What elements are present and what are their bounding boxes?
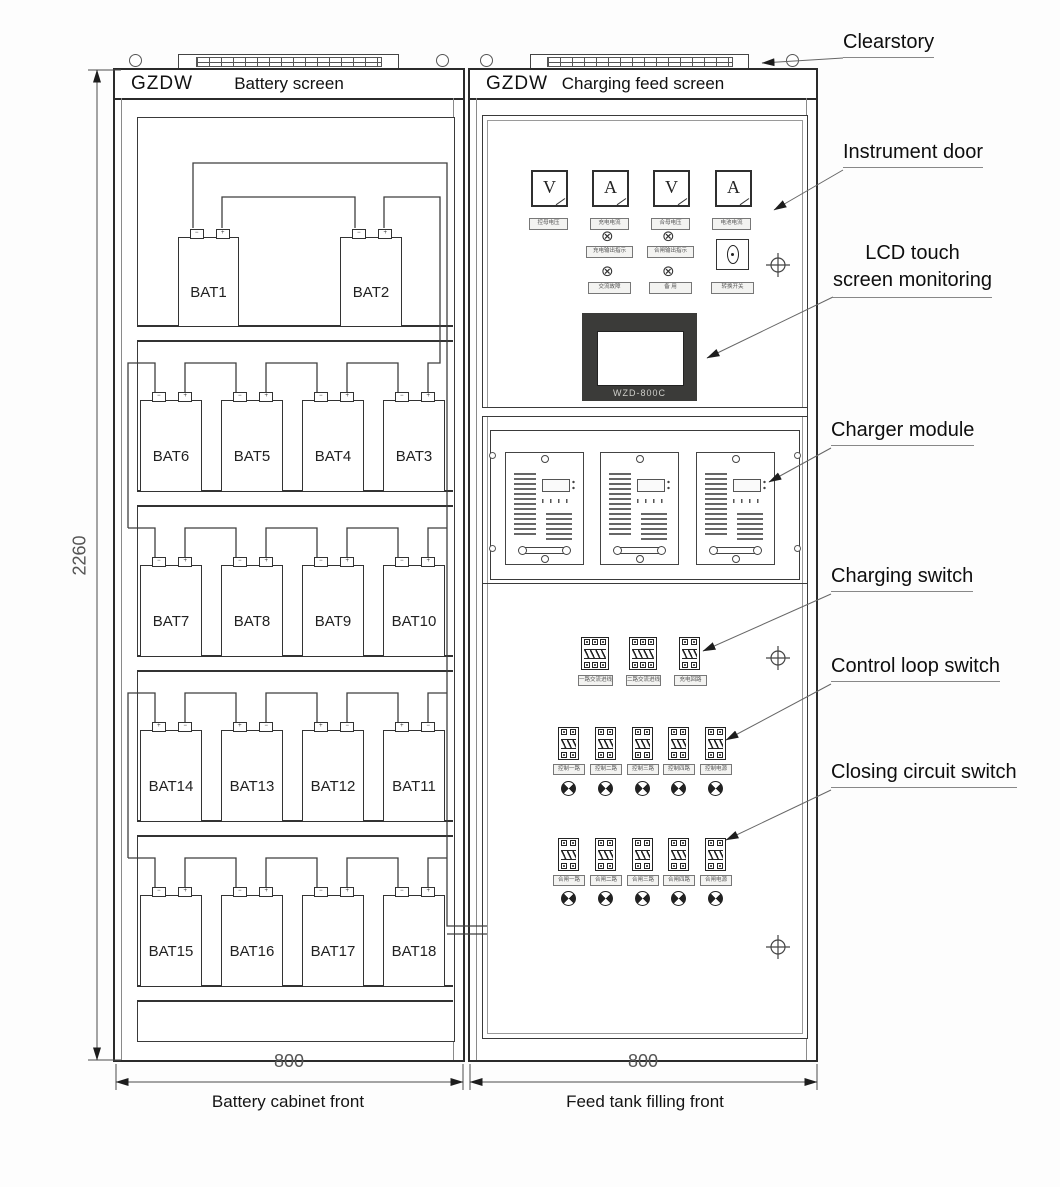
terminal-sign: + [400, 723, 404, 729]
breaker-levers [671, 739, 686, 749]
battery-label: BAT10 [384, 613, 444, 630]
battery: −+BAT3 [383, 400, 445, 492]
lcd-display [597, 331, 684, 386]
breaker-levers [598, 739, 613, 749]
annotation-clearstory: Clearstory [843, 31, 934, 58]
breaker-poles [559, 751, 578, 759]
indicator-light-icon: ⊗ [662, 229, 675, 244]
rotary-switch [716, 239, 749, 270]
fuse-indicator-icon [561, 891, 576, 906]
battery: − + BAT1 [178, 237, 239, 327]
panel-screw-icon [794, 545, 801, 552]
battery: −+BAT18 [383, 895, 445, 987]
battery: +−BAT11 [383, 730, 445, 822]
terminal-sign: − [400, 558, 404, 564]
handle-cap-icon [709, 546, 718, 555]
fuse-indicator-icon [561, 781, 576, 796]
module-screw-icon [541, 455, 549, 463]
battery-terminal-negative: − [152, 557, 166, 567]
terminal-sign: − [157, 558, 161, 564]
meter-symbol: A [604, 177, 617, 197]
terminal-sign: + [264, 558, 268, 564]
module-vent-grille [546, 513, 572, 543]
breaker-levers [682, 649, 697, 659]
breaker-poles [680, 661, 699, 669]
switch-label-plate: 控制三路 [627, 764, 659, 775]
annotation-charger-module: Charger module [831, 419, 974, 446]
terminal-sign: + [157, 723, 161, 729]
breaker-poles [630, 661, 656, 669]
terminal-sign: + [383, 230, 387, 236]
fuse-indicator-icon [635, 781, 650, 796]
module-indicator-row [542, 499, 574, 503]
battery-label: BAT12 [303, 778, 363, 795]
breaker-poles [669, 728, 688, 736]
battery-label: BAT14 [141, 778, 201, 795]
breaker-poles [596, 728, 615, 736]
feed-cabinet-width-dimension: 800 [593, 1051, 693, 1072]
breaker-levers [632, 649, 654, 659]
voltmeter: V [531, 170, 568, 207]
handle-cap-icon [753, 546, 762, 555]
breaker-poles [559, 728, 578, 736]
battery-terminal-negative: − [190, 229, 204, 239]
battery-terminal-positive: + [421, 887, 435, 897]
battery: −+BAT17 [302, 895, 364, 987]
battery: +−BAT14 [140, 730, 202, 822]
module-indicator-row [733, 499, 765, 503]
module-screw-icon [636, 455, 644, 463]
breaker-poles [706, 728, 725, 736]
battery: −+BAT9 [302, 565, 364, 657]
terminal-sign: − [400, 393, 404, 399]
breaker-levers [584, 649, 606, 659]
switch-label-plate: 控制二路 [590, 764, 622, 775]
terminal-sign: − [183, 723, 187, 729]
battery-terminal-positive: + [152, 722, 166, 732]
switch-label-plate: 二路交流进线 [626, 675, 661, 686]
battery-terminal-positive: + [340, 392, 354, 402]
battery-terminal-negative: − [178, 722, 192, 732]
annotation-line: LCD touch [833, 240, 992, 267]
vent-grille [196, 57, 382, 67]
terminal-sign: + [345, 558, 349, 564]
battery-terminal-negative: − [395, 392, 409, 402]
breaker-levers [708, 739, 723, 749]
battery-terminal-positive: + [314, 722, 328, 732]
closing-circuit-breaker [668, 838, 689, 871]
battery-shelf [137, 490, 453, 507]
charging-switch-breaker [629, 637, 657, 670]
lcd-touch-screen: WZD-800C [582, 313, 697, 401]
battery-terminal-positive: + [421, 392, 435, 402]
battery-terminal-positive: + [178, 557, 192, 567]
charging-switch-breaker [679, 637, 700, 670]
meter-label-plate: 电池电流 [712, 218, 751, 230]
indicator-light-icon: ⊗ [662, 264, 675, 279]
battery-terminal-negative: − [152, 392, 166, 402]
cabinet-title: Charging feed screen [470, 74, 816, 94]
rotary-switch-label-plate: 转换开关 [711, 282, 754, 294]
battery-label: BAT9 [303, 613, 363, 630]
switch-label-plate: 一路交流进线 [578, 675, 613, 686]
voltmeter: V [653, 170, 690, 207]
breaker-levers [561, 739, 576, 749]
instrument-door-divider [482, 407, 807, 417]
battery-terminal-positive: + [233, 722, 247, 732]
battery-label: BAT15 [141, 943, 201, 960]
feeder-section-divider [482, 583, 807, 584]
feed-cabinet-caption: Feed tank filling front [508, 1092, 782, 1112]
terminal-sign: + [426, 558, 430, 564]
breaker-poles [633, 839, 652, 847]
battery-label: BAT2 [341, 284, 401, 301]
switch-label-plate: 合闸三路 [627, 875, 659, 886]
battery-label: BAT11 [384, 778, 444, 795]
handle-cap-icon [613, 546, 622, 555]
battery-label: BAT7 [141, 613, 201, 630]
breaker-poles [596, 839, 615, 847]
charger-module [600, 452, 679, 565]
battery-terminal-negative: − [314, 557, 328, 567]
control-loop-breaker [705, 727, 726, 760]
module-led-icons [763, 480, 766, 490]
charging-switch-breaker [581, 637, 609, 670]
battery-label: BAT13 [222, 778, 282, 795]
battery-label: BAT6 [141, 448, 201, 465]
closing-circuit-breaker [632, 838, 653, 871]
terminal-sign: − [426, 723, 430, 729]
breaker-poles [596, 862, 615, 870]
module-display [637, 479, 665, 492]
closing-circuit-breaker [595, 838, 616, 871]
feed-cabinet-nameplate: GZDW Charging feed screen [470, 70, 816, 100]
battery-label: BAT18 [384, 943, 444, 960]
battery-cabinet-nameplate: GZDW Battery screen [115, 70, 463, 100]
indicator-light-icon: ⊗ [601, 264, 614, 279]
terminal-sign: + [345, 393, 349, 399]
terminal-sign: − [238, 888, 242, 894]
battery-terminal-positive: + [378, 229, 392, 239]
battery-terminal-positive: + [340, 887, 354, 897]
battery-terminal-positive: + [421, 557, 435, 567]
terminal-sign: + [183, 888, 187, 894]
battery-label: BAT3 [384, 448, 444, 465]
breaker-poles [559, 862, 578, 870]
terminal-sign: − [238, 393, 242, 399]
panel-screw-icon [489, 452, 496, 459]
breaker-poles [582, 638, 608, 646]
annotation-instrument-door: Instrument door [843, 141, 983, 168]
handle-cap-icon [562, 546, 571, 555]
closing-circuit-breaker [558, 838, 579, 871]
battery-terminal-positive: + [259, 887, 273, 897]
module-screw-icon [636, 555, 644, 563]
annotation-control-loop-switch: Control loop switch [831, 655, 1000, 682]
fuse-indicator-icon [671, 891, 686, 906]
breaker-poles [706, 862, 725, 870]
battery-terminal-positive: + [340, 557, 354, 567]
switch-label-plate: 控制四路 [663, 764, 695, 775]
terminal-sign: − [400, 888, 404, 894]
battery: +−BAT13 [221, 730, 283, 822]
battery-terminal-negative: − [352, 229, 366, 239]
breaker-poles [669, 751, 688, 759]
breaker-poles [633, 862, 652, 870]
cabinet-title: Battery screen [115, 74, 463, 94]
breaker-poles [633, 751, 652, 759]
battery-cabinet-width-dimension: 800 [239, 1051, 339, 1072]
annotation-charging-switch: Charging switch [831, 565, 973, 592]
battery: −+BAT16 [221, 895, 283, 987]
battery: −+BAT8 [221, 565, 283, 657]
meter-needle-icon [556, 198, 566, 205]
breaker-levers [671, 850, 686, 860]
breaker-levers [635, 739, 650, 749]
breaker-poles [706, 839, 725, 847]
breaker-poles [596, 751, 615, 759]
cabinet-wall-line [476, 98, 477, 1060]
fuse-indicator-icon [598, 891, 613, 906]
meter-label-plate: 控母电压 [529, 218, 568, 230]
meter-needle-icon [740, 198, 750, 205]
charger-module [696, 452, 775, 565]
fuse-indicator-icon [671, 781, 686, 796]
terminal-sign: − [157, 888, 161, 894]
meter-symbol: V [543, 177, 556, 197]
battery: − + BAT2 [340, 237, 402, 327]
breaker-levers [561, 850, 576, 860]
battery-shelf [137, 655, 453, 672]
breaker-poles [630, 638, 656, 646]
breaker-poles [633, 728, 652, 736]
battery: −+BAT5 [221, 400, 283, 492]
battery-label: BAT5 [222, 448, 282, 465]
breaker-poles [680, 638, 699, 646]
terminal-sign: − [238, 558, 242, 564]
battery-terminal-positive: + [395, 722, 409, 732]
terminal-sign: − [264, 723, 268, 729]
control-loop-breaker [595, 727, 616, 760]
module-vent-grille [609, 473, 631, 537]
breaker-levers [598, 850, 613, 860]
battery-terminal-negative: − [233, 392, 247, 402]
breaker-levers [635, 850, 650, 860]
battery-terminal-negative: − [395, 887, 409, 897]
terminal-sign: − [357, 230, 361, 236]
terminal-sign: − [195, 230, 199, 236]
battery: −+BAT7 [140, 565, 202, 657]
terminal-sign: + [264, 888, 268, 894]
meter-needle-icon [617, 198, 627, 205]
battery-terminal-positive: + [216, 229, 230, 239]
module-vent-grille [737, 513, 763, 543]
control-loop-breaker [632, 727, 653, 760]
charger-module [505, 452, 584, 565]
battery-label: BAT17 [303, 943, 363, 960]
module-vent-grille [514, 473, 536, 537]
annotation-closing-circuit-switch: Closing circuit switch [831, 761, 1017, 788]
terminal-sign: + [426, 393, 430, 399]
indicator-light-icon: ⊗ [601, 229, 614, 244]
terminal-sign: + [426, 888, 430, 894]
lifting-eye [786, 54, 799, 67]
battery-label: BAT16 [222, 943, 282, 960]
rotary-knob-icon [727, 245, 739, 264]
battery-terminal-negative: − [314, 392, 328, 402]
meter-symbol: A [727, 177, 740, 197]
battery-terminal-positive: + [178, 887, 192, 897]
annotation-line: screen monitoring [833, 267, 992, 294]
height-dimension: 2260 [70, 501, 91, 611]
switch-label-plate: 充电回路 [674, 675, 707, 686]
handle-cap-icon [657, 546, 666, 555]
battery-label: BAT4 [303, 448, 363, 465]
indicator-label-plate: 充电输出指示 [586, 246, 633, 258]
meter-symbol: V [665, 177, 678, 197]
meter-needle-icon [678, 198, 688, 205]
battery-cabinet-caption: Battery cabinet front [157, 1092, 419, 1112]
battery: −+BAT10 [383, 565, 445, 657]
lifting-eye [129, 54, 142, 67]
switch-label-plate: 合闸电源 [700, 875, 732, 886]
panel-screw-icon [794, 452, 801, 459]
battery-terminal-positive: + [259, 392, 273, 402]
terminal-sign: + [221, 230, 225, 236]
panel-screw-icon [489, 545, 496, 552]
control-loop-breaker [668, 727, 689, 760]
breaker-poles [669, 862, 688, 870]
lifting-eye [436, 54, 449, 67]
terminal-sign: + [238, 723, 242, 729]
fuse-indicator-icon [598, 781, 613, 796]
fuse-indicator-icon [708, 781, 723, 796]
indicator-label-plate: 交流故障 [588, 282, 631, 294]
switch-label-plate: 合闸一路 [553, 875, 585, 886]
ammeter: A [592, 170, 629, 207]
lifting-eye [480, 54, 493, 67]
battery-terminal-negative: − [259, 722, 273, 732]
module-led-icons [572, 480, 575, 490]
battery-shelf [137, 985, 453, 1002]
battery: −+BAT4 [302, 400, 364, 492]
ammeter: A [715, 170, 752, 207]
terminal-sign: − [345, 723, 349, 729]
indicator-label-plate: 合闸输出指示 [647, 246, 694, 258]
battery: +−BAT12 [302, 730, 364, 822]
cabinet-wall-line [121, 98, 122, 1060]
battery-terminal-negative: − [152, 887, 166, 897]
battery: −+BAT15 [140, 895, 202, 987]
battery-terminal-positive: + [259, 557, 273, 567]
battery-terminal-positive: + [178, 392, 192, 402]
terminal-sign: − [319, 888, 323, 894]
breaker-poles [582, 661, 608, 669]
battery-terminal-negative: − [233, 887, 247, 897]
module-screw-icon [732, 455, 740, 463]
module-vent-grille [641, 513, 667, 543]
module-led-icons [667, 480, 670, 490]
battery-label: BAT1 [179, 284, 238, 301]
closing-circuit-breaker [705, 838, 726, 871]
battery-terminal-negative: − [314, 887, 328, 897]
terminal-sign: + [319, 723, 323, 729]
terminal-sign: + [345, 888, 349, 894]
switch-label-plate: 合闸二路 [590, 875, 622, 886]
battery-label: BAT8 [222, 613, 282, 630]
module-screw-icon [541, 555, 549, 563]
terminal-sign: − [319, 393, 323, 399]
battery-terminal-negative: − [233, 557, 247, 567]
terminal-sign: − [157, 393, 161, 399]
battery-shelf [137, 325, 453, 342]
breaker-poles [706, 751, 725, 759]
handle-cap-icon [518, 546, 527, 555]
module-display [542, 479, 570, 492]
switch-label-plate: 合闸四路 [663, 875, 695, 886]
breaker-poles [559, 839, 578, 847]
terminal-sign: + [183, 393, 187, 399]
module-screw-icon [732, 555, 740, 563]
breaker-levers [708, 850, 723, 860]
battery: −+BAT6 [140, 400, 202, 492]
battery-terminal-negative: − [340, 722, 354, 732]
battery-shelf [137, 820, 453, 837]
vent-grille [547, 57, 733, 67]
battery-terminal-negative: − [395, 557, 409, 567]
module-display [733, 479, 761, 492]
fuse-indicator-icon [708, 891, 723, 906]
annotation-lcd-monitoring: LCD touch screen monitoring [833, 240, 992, 298]
terminal-sign: + [183, 558, 187, 564]
module-indicator-row [637, 499, 669, 503]
indicator-label-plate: 备 用 [649, 282, 692, 294]
terminal-sign: + [264, 393, 268, 399]
switch-label-plate: 控制电源 [700, 764, 732, 775]
cabinet-elevation-diagram: GZDW Battery screen − + BAT1 − + BAT2 −+… [0, 0, 1060, 1187]
battery-terminal-negative: − [421, 722, 435, 732]
fuse-indicator-icon [635, 891, 650, 906]
breaker-poles [669, 839, 688, 847]
module-vent-grille [705, 473, 727, 537]
lcd-model-label: WZD-800C [582, 388, 697, 398]
control-loop-breaker [558, 727, 579, 760]
terminal-sign: − [319, 558, 323, 564]
switch-label-plate: 控制一路 [553, 764, 585, 775]
